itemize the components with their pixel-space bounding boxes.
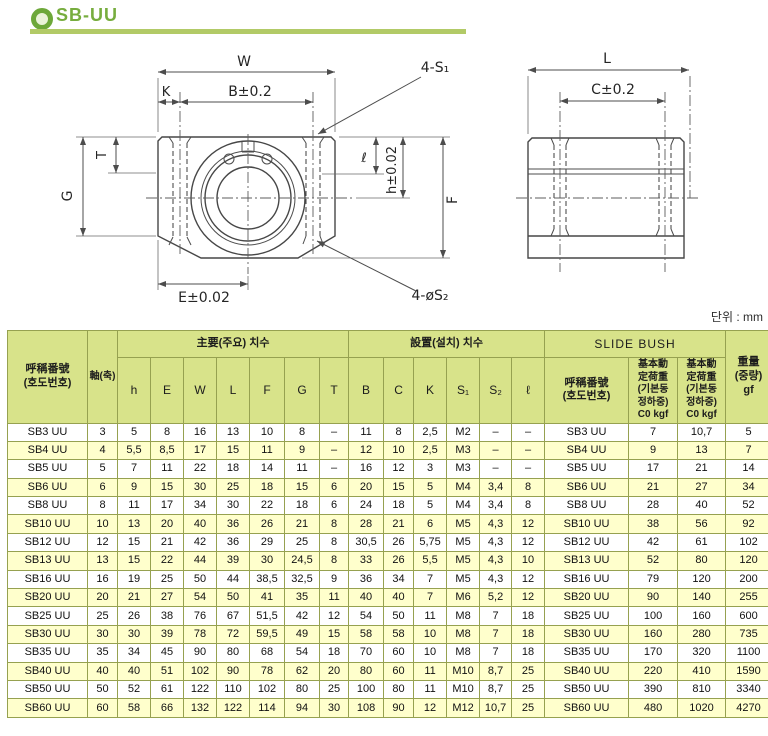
header-col-l: L bbox=[217, 358, 250, 424]
table-cell: – bbox=[320, 423, 349, 441]
table-cell: 68 bbox=[250, 644, 285, 662]
table-cell: 8 bbox=[512, 478, 545, 496]
table-cell: 35 bbox=[88, 644, 118, 662]
table-cell: 8 bbox=[320, 515, 349, 533]
table-cell: 39 bbox=[217, 552, 250, 570]
table-cell: M8 bbox=[447, 644, 480, 662]
table-cell: 10 bbox=[384, 441, 414, 459]
table-cell: 15 bbox=[285, 478, 320, 496]
table-cell: M8 bbox=[447, 625, 480, 643]
table-cell: 140 bbox=[678, 589, 726, 607]
table-cell: 3 bbox=[414, 460, 447, 478]
table-cell: 60 bbox=[384, 644, 414, 662]
table-cell: 54 bbox=[349, 607, 384, 625]
table-cell: 34 bbox=[184, 497, 217, 515]
table-cell: 40 bbox=[184, 515, 217, 533]
table-cell: 7 bbox=[414, 589, 447, 607]
table-cell: 90 bbox=[184, 644, 217, 662]
table-cell: 15 bbox=[320, 625, 349, 643]
table-cell: 108 bbox=[349, 699, 384, 717]
table-cell: 42 bbox=[184, 533, 217, 551]
table-cell: 20 bbox=[320, 662, 349, 680]
table-cell: 11 bbox=[285, 460, 320, 478]
table-cell: 18 bbox=[512, 625, 545, 643]
header-col-w: W bbox=[184, 358, 217, 424]
table-cell: 22 bbox=[151, 552, 184, 570]
dimensions: W K B±0.2 4-S₁ T G ℓ h±0.02 F bbox=[60, 54, 460, 306]
table-cell: SB8 UU bbox=[8, 497, 88, 515]
table-cell: 102 bbox=[250, 680, 285, 698]
table-cell: 21 bbox=[118, 589, 151, 607]
header-col-b: B bbox=[349, 358, 384, 424]
table-cell: SB3 UU bbox=[8, 423, 88, 441]
table-cell: 27 bbox=[151, 589, 184, 607]
table-cell: 38 bbox=[151, 607, 184, 625]
table-cell: 61 bbox=[678, 533, 726, 551]
table-cell: 18 bbox=[285, 497, 320, 515]
table-row: SB12 UU12152142362925830,5265,75M54,312S… bbox=[8, 533, 768, 551]
table-cell: SB4 UU bbox=[8, 441, 88, 459]
table-cell: 25 bbox=[512, 662, 545, 680]
table-cell: 22 bbox=[250, 497, 285, 515]
table-cell: 4,3 bbox=[480, 533, 512, 551]
bolt-holes-side bbox=[554, 92, 671, 272]
table-row: SB20 UU202127545041351140407M65,212SB20 … bbox=[8, 589, 768, 607]
table-cell: SB30 UU bbox=[8, 625, 88, 643]
table-cell: 79 bbox=[629, 570, 678, 588]
table-cell: 10 bbox=[414, 625, 447, 643]
table-cell: M10 bbox=[447, 662, 480, 680]
table-cell: SB8 UU bbox=[545, 497, 629, 515]
table-cell: 9 bbox=[629, 441, 678, 459]
table-cell: SB13 UU bbox=[8, 552, 88, 570]
table-cell: 78 bbox=[250, 662, 285, 680]
table-cell: 40 bbox=[678, 497, 726, 515]
table-cell: 56 bbox=[678, 515, 726, 533]
table-cell: 49 bbox=[285, 625, 320, 643]
table-cell: 11 bbox=[414, 680, 447, 698]
table-cell: 24 bbox=[349, 497, 384, 515]
table-row: SB4 UU45,58,51715119–12102,5M3––SB4 UU91… bbox=[8, 441, 768, 459]
dim-label-t: T bbox=[95, 151, 110, 160]
spec-table: 呼稱番號 (호도번호) 軸(축) 主要(주요) 치수 設置(설치) 치수 SLI… bbox=[7, 330, 768, 718]
table-cell: 52 bbox=[629, 552, 678, 570]
table-cell: 54 bbox=[285, 644, 320, 662]
table-cell: 45 bbox=[151, 644, 184, 662]
table-cell: 7 bbox=[480, 625, 512, 643]
table-cell: 1020 bbox=[678, 699, 726, 717]
table-cell: 90 bbox=[629, 589, 678, 607]
table-cell: 8,7 bbox=[480, 680, 512, 698]
table-row: SB40 UU40405110290786220806011M108,725SB… bbox=[8, 662, 768, 680]
table-cell: 10 bbox=[88, 515, 118, 533]
table-cell: 5 bbox=[88, 460, 118, 478]
table-cell: 18 bbox=[250, 478, 285, 496]
table-cell: 14 bbox=[250, 460, 285, 478]
header-slide-bush: SLIDE BUSH bbox=[545, 331, 726, 358]
table-cell: 15 bbox=[118, 533, 151, 551]
table-cell: 50 bbox=[88, 680, 118, 698]
table-cell: 67 bbox=[217, 607, 250, 625]
table-cell: SB6 UU bbox=[545, 478, 629, 496]
dim-label-e: E±0.02 bbox=[178, 290, 230, 306]
table-cell: 19 bbox=[118, 570, 151, 588]
table-cell: 3,4 bbox=[480, 497, 512, 515]
table-cell: 7 bbox=[118, 460, 151, 478]
table-cell: M6 bbox=[447, 589, 480, 607]
table-row: SB50 UU50526112211010280251008011M108,72… bbox=[8, 680, 768, 698]
table-cell: SB10 UU bbox=[545, 515, 629, 533]
table-cell: 59,5 bbox=[250, 625, 285, 643]
table-cell: 735 bbox=[726, 625, 768, 643]
table-cell: 15 bbox=[118, 552, 151, 570]
table-cell: SB40 UU bbox=[545, 662, 629, 680]
dim-label-k: K bbox=[162, 85, 171, 100]
table-cell: 17 bbox=[184, 441, 217, 459]
table-cell: – bbox=[512, 441, 545, 459]
table-cell: 5,75 bbox=[414, 533, 447, 551]
callout-label-s2: 4-øS₂ bbox=[411, 288, 448, 304]
table-cell: 2,5 bbox=[414, 441, 447, 459]
side-view-drawing: L C±0.2 bbox=[492, 48, 766, 318]
table-cell: 5 bbox=[726, 423, 768, 441]
table-row: SB25 UU252638766751,54212545011M8718SB25… bbox=[8, 607, 768, 625]
table-row: SB13 UU13152244393024,5833265,5M54,310SB… bbox=[8, 552, 768, 570]
table-cell: – bbox=[480, 423, 512, 441]
table-cell: SB16 UU bbox=[8, 570, 88, 588]
dim-label-l: L bbox=[603, 51, 611, 67]
table-cell: 20 bbox=[349, 478, 384, 496]
table-cell: 72 bbox=[217, 625, 250, 643]
dim-label-ell: ℓ bbox=[360, 151, 366, 166]
table-cell: 16 bbox=[184, 423, 217, 441]
table-cell: SB4 UU bbox=[545, 441, 629, 459]
table-cell: 10 bbox=[250, 423, 285, 441]
table-cell: 92 bbox=[726, 515, 768, 533]
header-model: 呼稱番號 (호도번호) bbox=[8, 331, 88, 424]
table-cell: 122 bbox=[184, 680, 217, 698]
bolt-holes bbox=[173, 92, 320, 254]
table-cell: 25 bbox=[512, 680, 545, 698]
table-cell: 8 bbox=[320, 533, 349, 551]
header-col-c: C bbox=[384, 358, 414, 424]
table-cell: 810 bbox=[678, 680, 726, 698]
table-cell: 58 bbox=[384, 625, 414, 643]
table-cell: 40 bbox=[384, 589, 414, 607]
table-cell: 26 bbox=[384, 533, 414, 551]
table-cell: 100 bbox=[349, 680, 384, 698]
table-cell: 39 bbox=[151, 625, 184, 643]
table-cell: 220 bbox=[629, 662, 678, 680]
header-load2: 基本動 定荷重 (기본동 정하중) C0 kgf bbox=[678, 358, 726, 424]
table-cell: 52 bbox=[726, 497, 768, 515]
table-cell: 51,5 bbox=[250, 607, 285, 625]
table-row: SB16 UU161925504438,532,5936347M54,312SB… bbox=[8, 570, 768, 588]
table-cell: 8,5 bbox=[151, 441, 184, 459]
table-cell: 8 bbox=[88, 497, 118, 515]
unit-note: 단위 : mm bbox=[711, 308, 763, 325]
table-cell: 44 bbox=[184, 552, 217, 570]
header-col-g: G bbox=[285, 358, 320, 424]
table-cell: SB6 UU bbox=[8, 478, 88, 496]
table-cell: 30 bbox=[184, 478, 217, 496]
table-cell: 160 bbox=[678, 607, 726, 625]
table-cell: 14 bbox=[726, 460, 768, 478]
table-cell: 66 bbox=[151, 699, 184, 717]
table-cell: 7 bbox=[414, 570, 447, 588]
table-cell: 34 bbox=[384, 570, 414, 588]
table-cell: M10 bbox=[447, 680, 480, 698]
table-cell: 18 bbox=[217, 460, 250, 478]
dim-label-h: h±0.02 bbox=[385, 146, 400, 194]
table-cell: 18 bbox=[320, 644, 349, 662]
table-cell: 27 bbox=[678, 478, 726, 496]
bullet-ring-icon bbox=[31, 8, 53, 30]
table-cell: 102 bbox=[184, 662, 217, 680]
table-cell: 52 bbox=[118, 680, 151, 698]
table-cell: 11 bbox=[118, 497, 151, 515]
header-load1: 基本動 定荷重 (기본동 정하중) C0 kgf bbox=[629, 358, 678, 424]
table-cell: M4 bbox=[447, 478, 480, 496]
table-cell: 36 bbox=[349, 570, 384, 588]
table-cell: 25 bbox=[88, 607, 118, 625]
table-cell: 5 bbox=[414, 478, 447, 496]
table-row: SB35 UU3534459080685418706010M8718SB35 U… bbox=[8, 644, 768, 662]
table-cell: 120 bbox=[726, 552, 768, 570]
table-cell: 12 bbox=[512, 515, 545, 533]
table-cell: M2 bbox=[447, 423, 480, 441]
table-cell: 36 bbox=[217, 515, 250, 533]
header-col-ell: ℓ bbox=[512, 358, 545, 424]
header-col-h: h bbox=[118, 358, 151, 424]
table-cell: 6 bbox=[88, 478, 118, 496]
table-cell: SB12 UU bbox=[8, 533, 88, 551]
table-cell: 15 bbox=[384, 478, 414, 496]
table-cell: 9 bbox=[118, 478, 151, 496]
table-cell: 11 bbox=[414, 662, 447, 680]
table-cell: 4,3 bbox=[480, 552, 512, 570]
table-row: SB5 UU571122181411–16123M3––SB5 UU172114 bbox=[8, 460, 768, 478]
table-cell: 10 bbox=[512, 552, 545, 570]
table-cell: 10 bbox=[414, 644, 447, 662]
table-cell: 38 bbox=[629, 515, 678, 533]
dim-label-w: W bbox=[237, 54, 251, 70]
table-cell: SB10 UU bbox=[8, 515, 88, 533]
table-cell: 78 bbox=[184, 625, 217, 643]
table-cell: 280 bbox=[678, 625, 726, 643]
table-cell: 5 bbox=[118, 423, 151, 441]
table-cell: 5,2 bbox=[480, 589, 512, 607]
table-cell: 12 bbox=[384, 460, 414, 478]
table-cell: 12 bbox=[512, 589, 545, 607]
table-cell: 20 bbox=[151, 515, 184, 533]
table-cell: 10,7 bbox=[678, 423, 726, 441]
table-cell: 13 bbox=[217, 423, 250, 441]
table-row: SB10 UU10132040362621828216M54,312SB10 U… bbox=[8, 515, 768, 533]
dim-label-f: F bbox=[445, 196, 460, 204]
table-cell: 21 bbox=[285, 515, 320, 533]
table-cell: 410 bbox=[678, 662, 726, 680]
table-row: SB6 UU691530251815620155M43,48SB6 UU2127… bbox=[8, 478, 768, 496]
table-cell: 51 bbox=[151, 662, 184, 680]
table-cell: 255 bbox=[726, 589, 768, 607]
table-cell: 480 bbox=[629, 699, 678, 717]
table-cell: 7 bbox=[480, 644, 512, 662]
table-cell: M5 bbox=[447, 533, 480, 551]
table-cell: 30,5 bbox=[349, 533, 384, 551]
table-cell: SB25 UU bbox=[545, 607, 629, 625]
table-cell: 12 bbox=[512, 533, 545, 551]
table-cell: 40 bbox=[118, 662, 151, 680]
header-bush-model: 呼稱番號 (호도번호) bbox=[545, 358, 629, 424]
table-cell: 6 bbox=[320, 478, 349, 496]
callout-label-s1: 4-S₁ bbox=[421, 60, 449, 76]
table-cell: 34 bbox=[726, 478, 768, 496]
table-cell: 36 bbox=[217, 533, 250, 551]
table-cell: 58 bbox=[118, 699, 151, 717]
table-cell: 41 bbox=[250, 589, 285, 607]
table-cell: SB13 UU bbox=[545, 552, 629, 570]
table-cell: 28 bbox=[629, 497, 678, 515]
table-cell: 54 bbox=[184, 589, 217, 607]
table-cell: 90 bbox=[384, 699, 414, 717]
table-cell: – bbox=[480, 441, 512, 459]
table-cell: SB20 UU bbox=[8, 589, 88, 607]
table-row: SB3 UU3581613108–1182,5M2––SB3 UU710,75 bbox=[8, 423, 768, 441]
table-cell: 26 bbox=[250, 515, 285, 533]
table-cell: 13 bbox=[118, 515, 151, 533]
table-cell: 8 bbox=[151, 423, 184, 441]
header-col-e: E bbox=[151, 358, 184, 424]
table-cell: 21 bbox=[678, 460, 726, 478]
table-cell: 8 bbox=[320, 552, 349, 570]
table-cell: SB16 UU bbox=[545, 570, 629, 588]
table-cell: 17 bbox=[629, 460, 678, 478]
table-row: SB30 UU303039787259,54915585810M8718SB30… bbox=[8, 625, 768, 643]
table-cell: 80 bbox=[384, 680, 414, 698]
table-cell: 60 bbox=[88, 699, 118, 717]
header-weight: 重量 (중량) gf bbox=[726, 331, 768, 424]
table-cell: 320 bbox=[678, 644, 726, 662]
table-cell: 21 bbox=[151, 533, 184, 551]
table-cell: 30 bbox=[88, 625, 118, 643]
dim-label-b: B±0.2 bbox=[228, 84, 272, 100]
table-cell: 9 bbox=[285, 441, 320, 459]
table-cell: 1590 bbox=[726, 662, 768, 680]
table-cell: M12 bbox=[447, 699, 480, 717]
table-cell: 58 bbox=[349, 625, 384, 643]
table-cell: 1100 bbox=[726, 644, 768, 662]
table-cell: SB60 UU bbox=[8, 699, 88, 717]
table-cell: 94 bbox=[285, 699, 320, 717]
table-cell: SB35 UU bbox=[8, 644, 88, 662]
table-cell: M3 bbox=[447, 441, 480, 459]
table-cell: 80 bbox=[678, 552, 726, 570]
table-cell: SB40 UU bbox=[8, 662, 88, 680]
table-cell: M4 bbox=[447, 497, 480, 515]
table-cell: 30 bbox=[118, 625, 151, 643]
spec-table-body: SB3 UU3581613108–1182,5M2––SB3 UU710,75S… bbox=[8, 423, 768, 717]
table-cell: 12 bbox=[512, 570, 545, 588]
table-cell: 80 bbox=[285, 680, 320, 698]
table-cell: 9 bbox=[320, 570, 349, 588]
table-cell: 8 bbox=[512, 497, 545, 515]
table-cell: 160 bbox=[629, 625, 678, 643]
table-cell: M5 bbox=[447, 552, 480, 570]
table-cell: 62 bbox=[285, 662, 320, 680]
table-cell: 61 bbox=[151, 680, 184, 698]
table-cell: 12 bbox=[414, 699, 447, 717]
table-cell: 2,5 bbox=[414, 423, 447, 441]
catalog-page: SB-UU bbox=[0, 0, 768, 736]
table-cell: 26 bbox=[118, 607, 151, 625]
table-cell: 8,7 bbox=[480, 662, 512, 680]
title-underline bbox=[30, 29, 466, 34]
table-cell: 42 bbox=[629, 533, 678, 551]
table-cell: 28 bbox=[349, 515, 384, 533]
table-cell: SB20 UU bbox=[545, 589, 629, 607]
table-cell: 90 bbox=[217, 662, 250, 680]
table-cell: SB25 UU bbox=[8, 607, 88, 625]
table-cell: 25 bbox=[512, 699, 545, 717]
table-cell: 60 bbox=[384, 662, 414, 680]
table-cell: 12 bbox=[88, 533, 118, 551]
table-cell: SB5 UU bbox=[8, 460, 88, 478]
table-cell: 35 bbox=[285, 589, 320, 607]
table-cell: – bbox=[512, 460, 545, 478]
table-cell: – bbox=[512, 423, 545, 441]
table-cell: 3,4 bbox=[480, 478, 512, 496]
table-cell: 102 bbox=[726, 533, 768, 551]
table-cell: 7 bbox=[480, 607, 512, 625]
table-cell: SB12 UU bbox=[545, 533, 629, 551]
table-cell: SB60 UU bbox=[545, 699, 629, 717]
table-cell: 25 bbox=[151, 570, 184, 588]
table-cell: 15 bbox=[217, 441, 250, 459]
table-cell: 114 bbox=[250, 699, 285, 717]
table-cell: 21 bbox=[384, 515, 414, 533]
table-cell: 17 bbox=[151, 497, 184, 515]
table-cell: 4,3 bbox=[480, 515, 512, 533]
table-cell: 4270 bbox=[726, 699, 768, 717]
table-cell: 21 bbox=[629, 478, 678, 496]
table-cell: 4 bbox=[88, 441, 118, 459]
table-cell: 50 bbox=[217, 589, 250, 607]
table-cell: 20 bbox=[88, 589, 118, 607]
table-cell: 600 bbox=[726, 607, 768, 625]
table-cell: – bbox=[320, 441, 349, 459]
table-cell: 100 bbox=[629, 607, 678, 625]
table-cell: 38,5 bbox=[250, 570, 285, 588]
table-cell: 390 bbox=[629, 680, 678, 698]
table-row: SB60 UU60586613212211494301089012M1210,7… bbox=[8, 699, 768, 717]
table-cell: 11 bbox=[151, 460, 184, 478]
table-cell: M3 bbox=[447, 460, 480, 478]
table-cell: 25 bbox=[285, 533, 320, 551]
table-cell: 5,5 bbox=[414, 552, 447, 570]
table-cell: 7 bbox=[629, 423, 678, 441]
table-cell: 25 bbox=[217, 478, 250, 496]
table-cell: M8 bbox=[447, 607, 480, 625]
table-cell: 5,5 bbox=[118, 441, 151, 459]
header-col-s2: S₂ bbox=[480, 358, 512, 424]
table-cell: 12 bbox=[320, 607, 349, 625]
table-cell: 11 bbox=[414, 607, 447, 625]
table-cell: 30 bbox=[250, 552, 285, 570]
table-cell: 4,3 bbox=[480, 570, 512, 588]
table-cell: SB30 UU bbox=[545, 625, 629, 643]
table-cell: 32,5 bbox=[285, 570, 320, 588]
